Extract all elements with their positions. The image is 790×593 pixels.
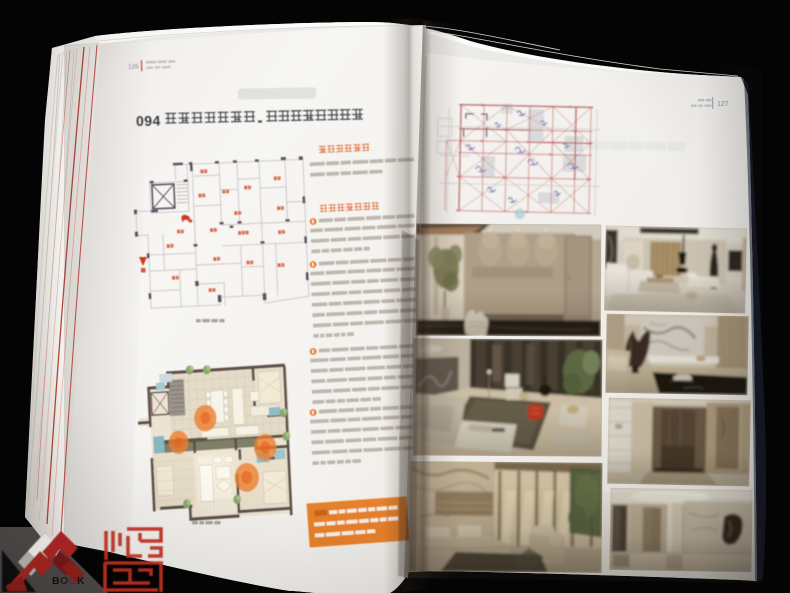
svg-text:O: O (69, 575, 77, 587)
svg-text:K: K (77, 575, 85, 587)
svg-text:O: O (60, 575, 68, 587)
